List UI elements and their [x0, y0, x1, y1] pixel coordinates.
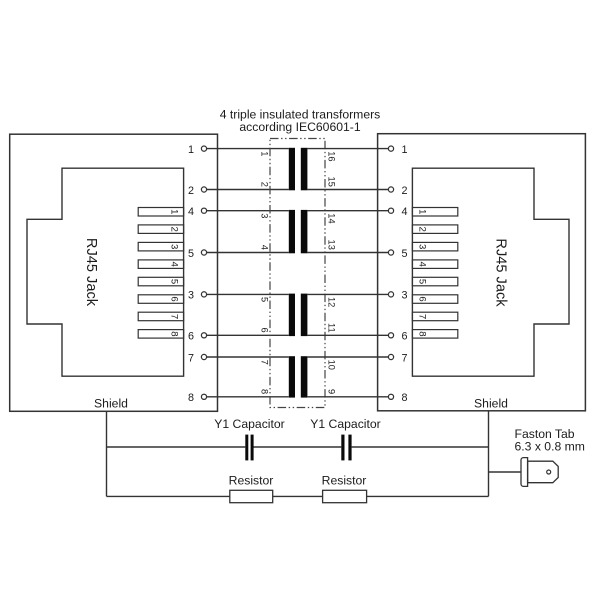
svg-text:3: 3: [169, 244, 180, 249]
svg-text:10: 10: [327, 360, 337, 370]
svg-text:8: 8: [401, 392, 407, 404]
svg-text:6: 6: [417, 296, 428, 301]
svg-text:13: 13: [327, 240, 337, 250]
svg-text:7: 7: [188, 352, 194, 364]
svg-text:1: 1: [417, 209, 428, 214]
svg-text:14: 14: [327, 213, 337, 223]
svg-text:7: 7: [417, 314, 428, 319]
svg-text:6: 6: [188, 331, 194, 343]
svg-text:1: 1: [259, 151, 269, 156]
svg-text:1: 1: [401, 144, 407, 156]
svg-text:4: 4: [401, 206, 407, 218]
svg-text:4: 4: [417, 262, 428, 268]
svg-text:5: 5: [401, 248, 407, 260]
svg-text:Resistor: Resistor: [322, 473, 367, 487]
svg-text:2: 2: [417, 227, 428, 232]
svg-text:6: 6: [401, 331, 407, 343]
svg-text:2: 2: [188, 185, 194, 197]
svg-text:according IEC60601-1: according IEC60601-1: [239, 120, 360, 134]
svg-text:7: 7: [169, 314, 180, 319]
svg-text:6.3 x 0.8 mm: 6.3 x 0.8 mm: [515, 440, 585, 454]
svg-text:2: 2: [401, 185, 407, 197]
svg-text:1: 1: [188, 144, 194, 156]
svg-text:7: 7: [259, 360, 269, 365]
svg-text:1: 1: [169, 209, 180, 214]
svg-text:3: 3: [188, 290, 194, 302]
svg-text:4: 4: [169, 262, 180, 268]
svg-text:15: 15: [327, 177, 337, 187]
svg-text:2: 2: [169, 227, 180, 232]
svg-text:Y1 Capacitor: Y1 Capacitor: [214, 417, 284, 431]
svg-text:5: 5: [417, 279, 428, 284]
svg-text:3: 3: [417, 244, 428, 249]
svg-text:Y1 Capacitor: Y1 Capacitor: [310, 417, 380, 431]
svg-text:Resistor: Resistor: [229, 473, 274, 487]
svg-text:RJ45 Jack: RJ45 Jack: [493, 238, 509, 307]
svg-text:4: 4: [259, 245, 269, 250]
svg-text:8: 8: [417, 331, 428, 336]
svg-text:5: 5: [259, 297, 269, 302]
svg-text:5: 5: [169, 279, 180, 284]
svg-text:7: 7: [401, 352, 407, 364]
svg-text:16: 16: [327, 151, 337, 161]
svg-text:4: 4: [188, 206, 194, 218]
svg-text:9: 9: [327, 389, 337, 394]
svg-text:8: 8: [169, 331, 180, 336]
svg-text:6: 6: [259, 328, 269, 333]
svg-text:11: 11: [327, 323, 337, 333]
svg-text:3: 3: [259, 213, 269, 218]
svg-text:8: 8: [188, 392, 194, 404]
svg-text:RJ45 Jack: RJ45 Jack: [83, 238, 99, 307]
svg-text:3: 3: [401, 290, 407, 302]
svg-text:2: 2: [259, 182, 269, 187]
svg-text:5: 5: [188, 248, 194, 260]
svg-text:6: 6: [169, 296, 180, 301]
svg-text:8: 8: [259, 389, 269, 394]
svg-text:Shield: Shield: [474, 397, 508, 411]
svg-text:12: 12: [327, 297, 337, 307]
svg-text:Shield: Shield: [94, 397, 128, 411]
